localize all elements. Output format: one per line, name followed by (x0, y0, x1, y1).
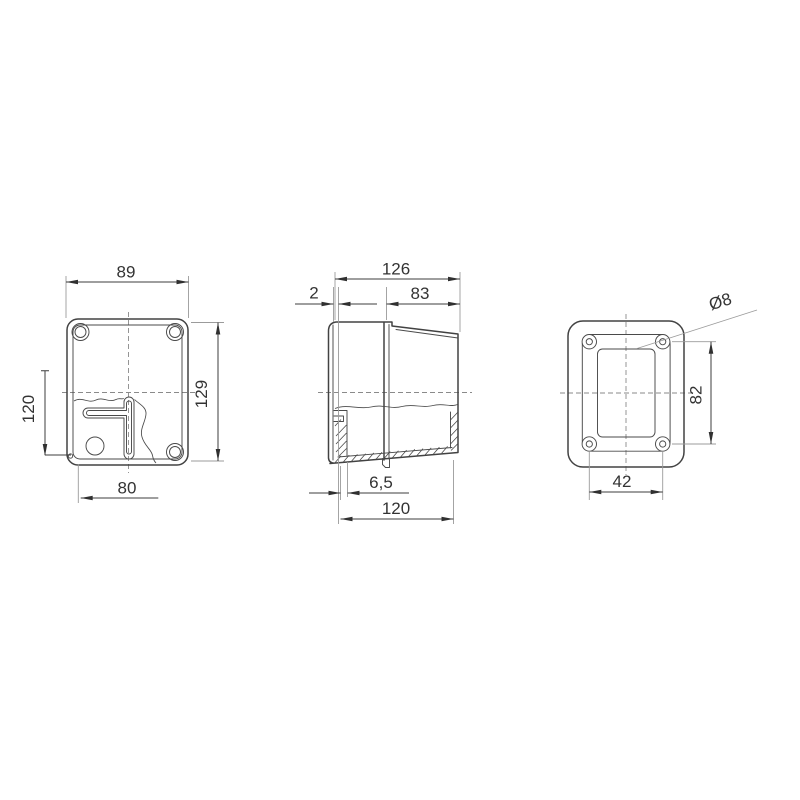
dim-label-front-mount-v: 120 (19, 395, 38, 423)
dim-label-side-lid-gap: 2 (309, 284, 318, 303)
side-break-line (335, 405, 458, 409)
arrow-left (81, 496, 93, 501)
dim-rear-hole-diameter: Ø8 (637, 289, 757, 348)
dim-label-front-width: 89 (117, 263, 136, 282)
dim-label-rear-pitch-h: 42 (613, 472, 632, 491)
arrow-down (216, 449, 221, 461)
dim-side-body-depth: 83 (387, 284, 461, 320)
side-view: 126 2 83 6,5 120 (295, 260, 472, 525)
arrow-down (709, 432, 714, 444)
dim-label-side-body-depth: 83 (411, 284, 430, 303)
arrow-right (448, 302, 460, 307)
side-hatch-left-wall (335, 420, 347, 458)
arrow-right (322, 302, 334, 307)
arrow-left (589, 490, 601, 495)
dim-side-depth-top: 126 (335, 260, 460, 333)
drawing-canvas: 89 129 120 80 (0, 0, 800, 800)
dim-front-height: 129 (191, 323, 224, 462)
dim-label-front-height: 129 (192, 380, 211, 408)
front-mount-hole-bottom-left (68, 454, 72, 458)
arrow-left (341, 517, 353, 522)
front-screw-top-left (75, 327, 86, 338)
rear-boss-bottom-left (582, 437, 596, 451)
arrow-down (43, 444, 48, 456)
arrow-left (339, 302, 351, 307)
dim-side-flange: 6,5 (309, 462, 409, 500)
leader-line (637, 310, 757, 349)
arrow-up (216, 323, 221, 335)
rear-view: Ø8 82 42 (560, 289, 757, 500)
dim-rear-pitch-vertical: 82 (672, 342, 716, 444)
technical-drawing: 89 129 120 80 (0, 0, 800, 800)
dim-label-side-depth-top: 126 (382, 260, 410, 279)
front-view: 89 129 120 80 (19, 263, 224, 504)
dim-front-mount-bottom: 80 (78, 464, 158, 503)
dim-side-lid-gap: 2 (295, 284, 377, 525)
arrow-right (651, 490, 663, 495)
dim-label-side-flange: 6,5 (369, 473, 393, 492)
front-t-slot-inner (87, 401, 132, 454)
rear-boss-top-left (582, 335, 596, 349)
side-hatch-right-wall (451, 412, 459, 451)
arrow-right (448, 277, 460, 282)
arrow-right (177, 280, 189, 285)
dim-label-rear-pitch-v: 82 (687, 386, 706, 405)
arrow-right (442, 517, 454, 522)
dim-label-side-depth-bottom: 120 (382, 499, 410, 518)
arrow-up (709, 342, 714, 354)
dim-label-rear-hole-dia: Ø8 (707, 289, 734, 314)
arrow-left (387, 302, 399, 307)
front-outer-contour (67, 319, 188, 465)
dim-front-mount-vertical: 120 (19, 371, 71, 456)
arrow-left (335, 277, 347, 282)
dim-label-front-mount-b: 80 (118, 479, 137, 498)
front-screw-bottom-right (170, 447, 181, 458)
arrow-left (348, 491, 360, 496)
rear-boss-bottom-right (656, 437, 670, 451)
arrow-left (66, 280, 78, 285)
front-knockout-hole (86, 437, 104, 455)
front-screw-top-right (170, 327, 181, 338)
dim-front-width: 89 (66, 263, 189, 319)
